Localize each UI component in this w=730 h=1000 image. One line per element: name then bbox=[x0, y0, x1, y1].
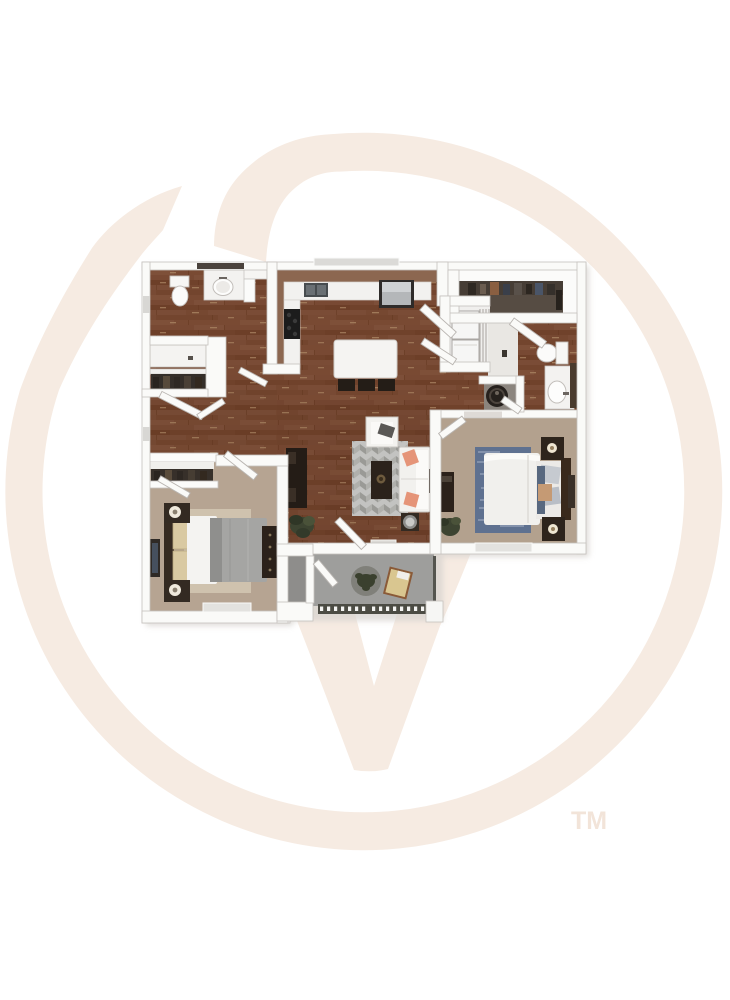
svg-text:TM: TM bbox=[571, 807, 607, 835]
